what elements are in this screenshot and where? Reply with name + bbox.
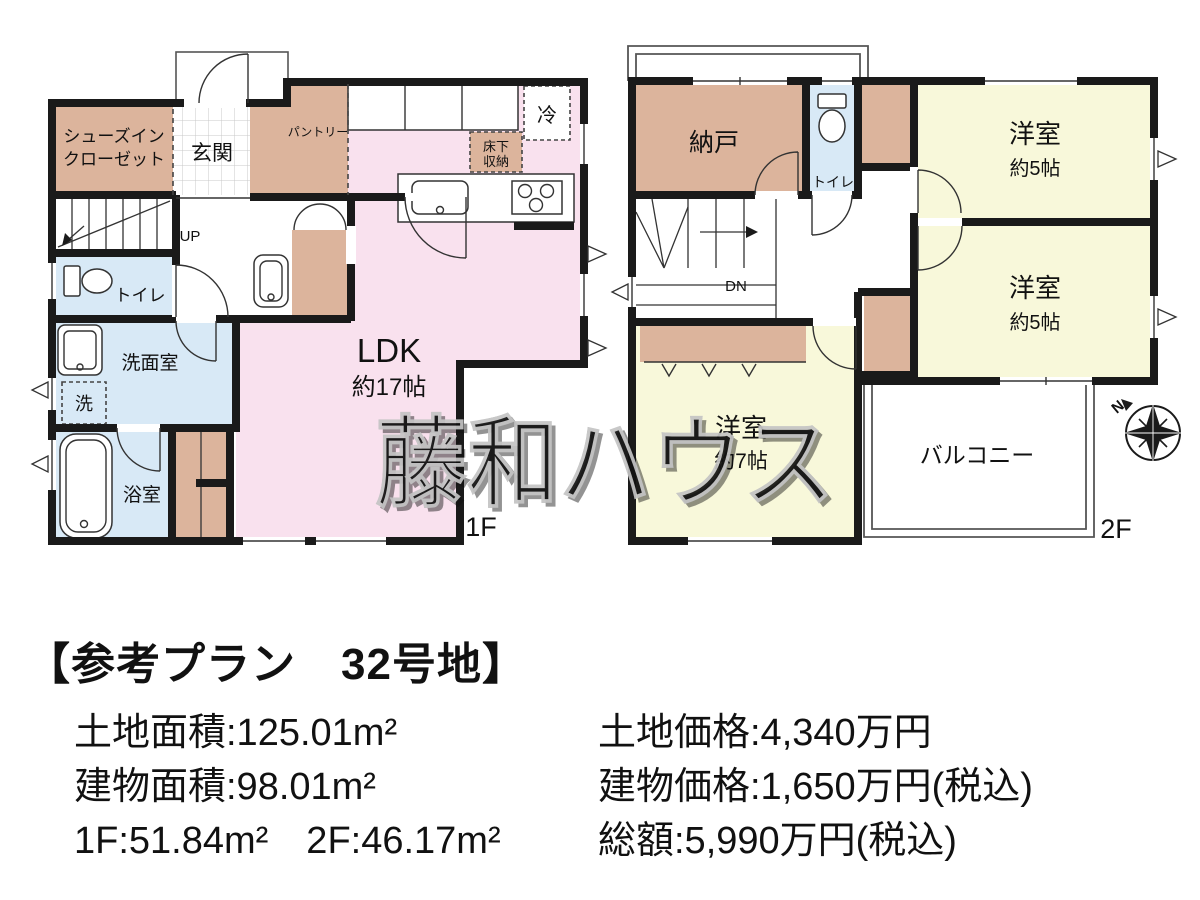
stairs-1f	[58, 199, 170, 249]
entrance-porch	[176, 52, 288, 105]
bathtub	[60, 434, 112, 538]
label-toilet-1f: トイレ	[115, 286, 166, 305]
label-washroom: 洗面室	[121, 352, 178, 374]
toilet-fixture-2f	[818, 94, 846, 142]
floor-areas: 1F:51.84m² 2F:46.17m²	[74, 814, 501, 868]
kitchen-counter	[398, 174, 574, 230]
washroom-sink	[58, 325, 102, 375]
plan-title: 【参考プラン 32号地】	[26, 628, 527, 692]
label-storage: 納戸	[689, 129, 739, 157]
label-balcony: バルコニー	[920, 442, 1035, 468]
label-shoes-closet-2: クローゼット	[63, 150, 165, 169]
land-price: 土地価格:4,340万円	[598, 706, 1033, 760]
label-bedroom-b: 洋室	[1009, 273, 1061, 303]
label-laundry: 洗	[75, 394, 93, 414]
label-ldk: LDK	[357, 332, 421, 369]
label-genkan: 玄関	[191, 142, 233, 165]
compass-icon: N	[1108, 397, 1182, 462]
hall-basin	[254, 255, 288, 307]
building-price: 建物価格:1,650万円(税込)	[598, 760, 1033, 814]
label-underfloor-2: 収納	[483, 154, 509, 169]
genkan-side-closet	[250, 107, 288, 195]
watermark: 藤和ハウス 藤和ハウス	[375, 408, 839, 524]
price-info: 土地価格:4,340万円 建物価格:1,650万円(税込) 総額:5,990万円…	[598, 706, 1033, 868]
hall-cupboard	[292, 230, 348, 318]
room-bedroom-a	[918, 85, 1154, 222]
kitchen-cabinets	[348, 84, 518, 130]
building-area: 建物面積:98.01m²	[74, 760, 501, 814]
area-info: 土地面積:125.01m² 建物面積:98.01m² 1F:51.84m² 2F…	[74, 706, 501, 868]
label-toilet-2f: トイレ	[812, 174, 854, 190]
label-bedroom-b-size: 約5帖	[1009, 311, 1060, 334]
floor-label-2f: 2F	[1100, 514, 1132, 544]
closet-bedroom-b	[864, 292, 914, 375]
stairs-2f	[636, 199, 776, 322]
svg-text:藤和ハウス: 藤和ハウス	[375, 408, 835, 520]
land-area: 土地面積:125.01m²	[74, 706, 501, 760]
room-bedroom-b	[918, 226, 1154, 381]
label-ldk-size: 約17帖	[352, 374, 427, 401]
compass-north-label: N	[1108, 397, 1127, 417]
label-bedroom-a: 洋室	[1009, 119, 1061, 149]
label-bath: 浴室	[123, 484, 161, 506]
floor-plan-canvas: シューズイン クローゼット 玄関 パントリー 冷 床下 収納 トイレ 洗面室 洗…	[0, 0, 1200, 612]
closet-hall-2f	[858, 85, 914, 167]
label-underfloor-1: 床下	[483, 139, 509, 154]
label-shoes-closet-1: シューズイン	[63, 127, 164, 146]
label-pantry: パントリー	[288, 125, 349, 139]
label-dn: DN	[725, 278, 747, 295]
total-price: 総額:5,990万円(税込)	[598, 814, 1033, 868]
balcony-top-2f	[628, 46, 868, 81]
label-fridge: 冷	[537, 104, 557, 127]
label-up: UP	[180, 228, 201, 245]
label-bedroom-a-size: 約5帖	[1009, 157, 1060, 180]
closet-bedroom-c	[640, 326, 806, 362]
